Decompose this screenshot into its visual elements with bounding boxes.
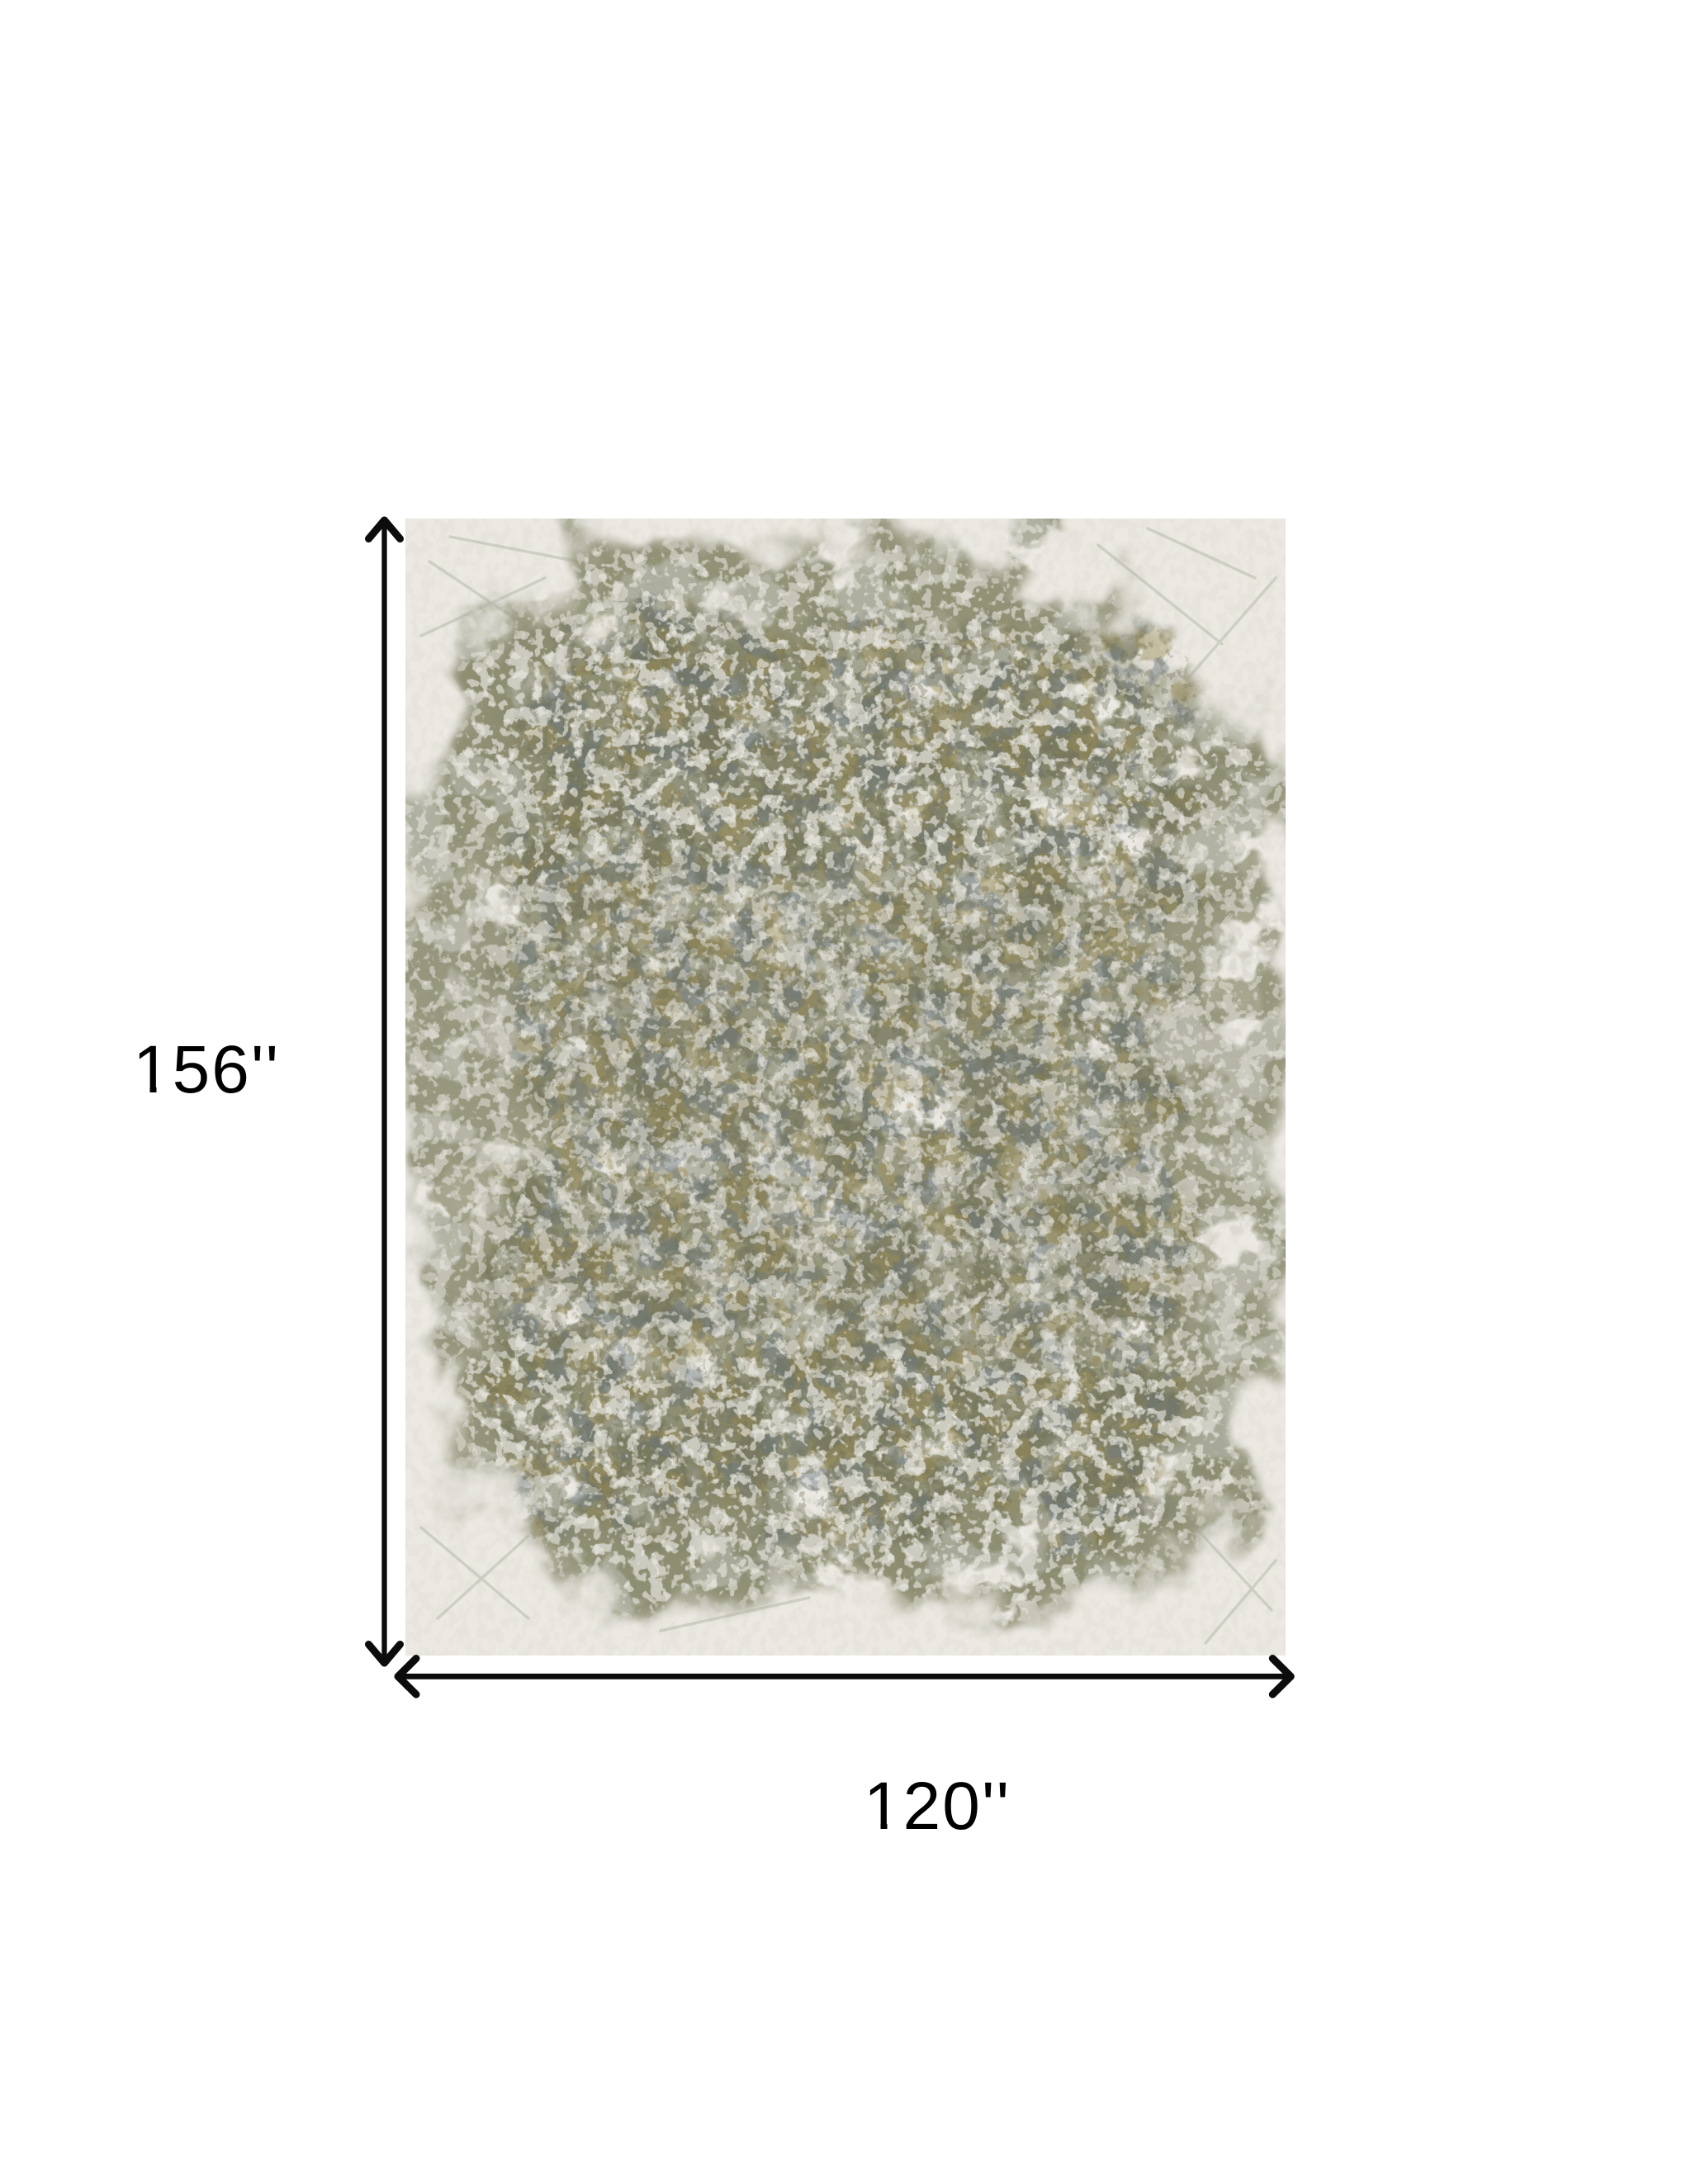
svg-text:120'': 120'' bbox=[864, 1769, 1011, 1844]
svg-text:156'': 156'' bbox=[133, 1032, 280, 1107]
